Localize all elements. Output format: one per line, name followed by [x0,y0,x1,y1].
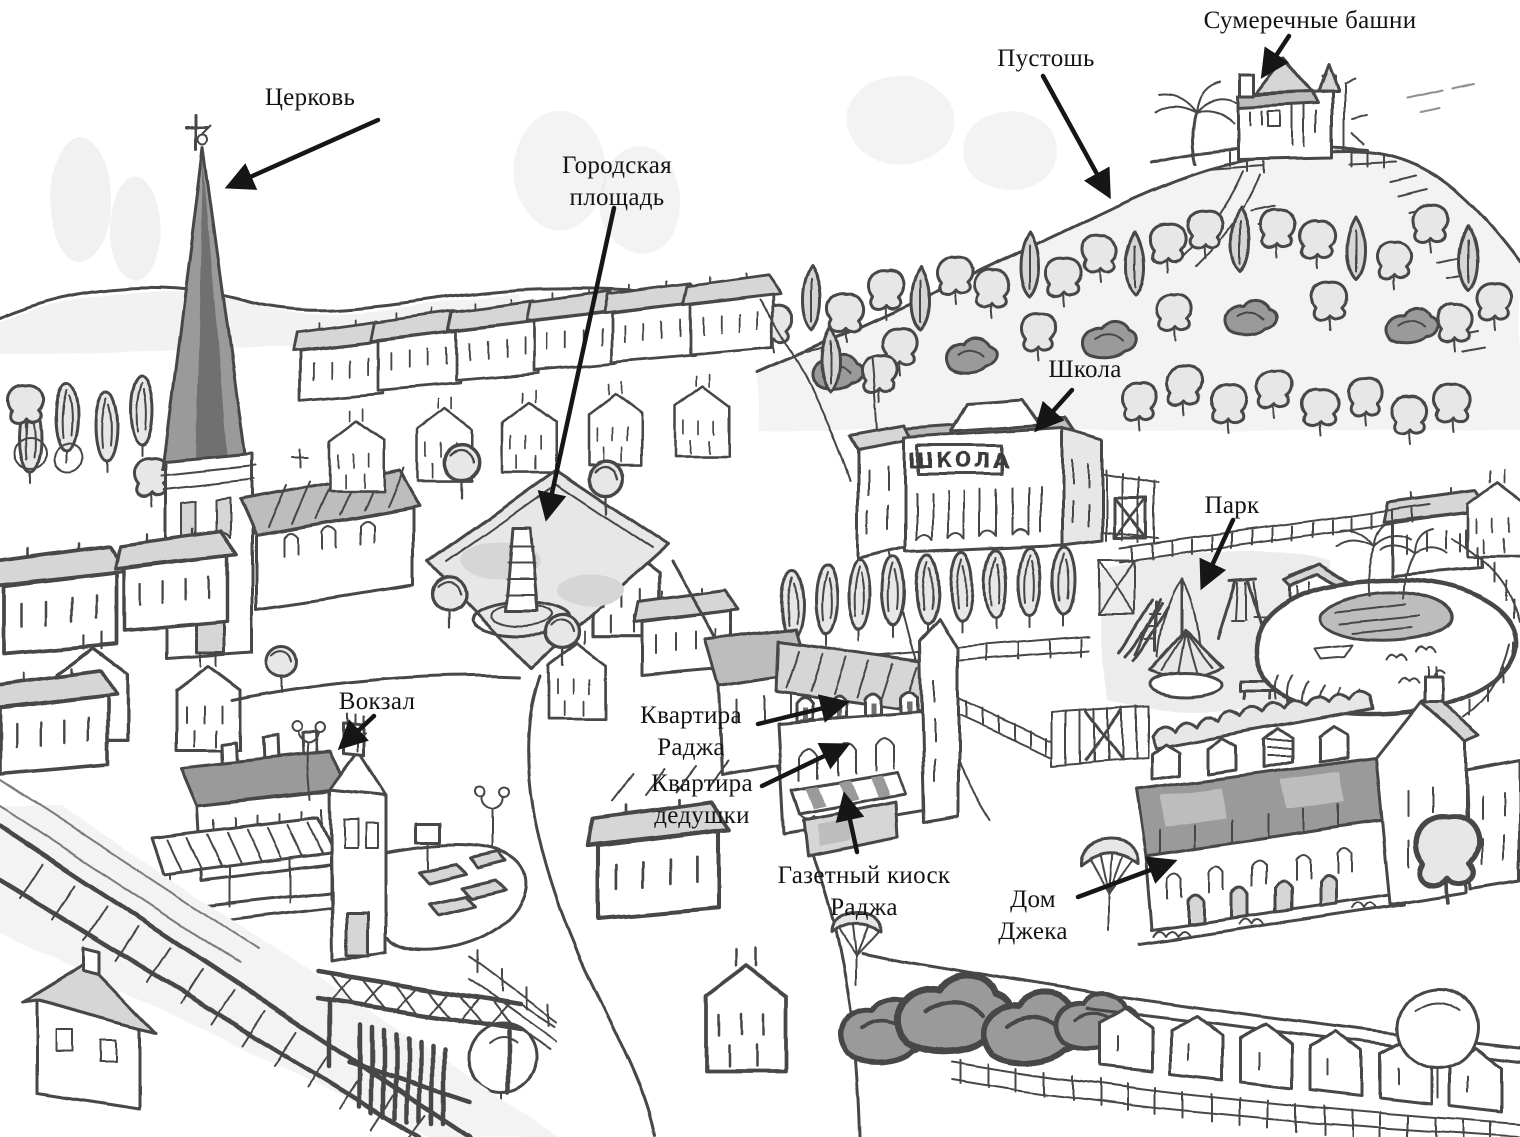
church-arrow [230,120,378,186]
label-church: Церковь [265,82,355,114]
label-heath: Пустошь [997,43,1095,75]
label-park: Парк [1205,490,1260,522]
label-raj-apartment: Квартира Раджа [626,700,756,764]
label-jack-house: Дом Джека [986,884,1081,948]
label-twilight-towers: Сумеречные башни [1204,5,1417,37]
left-trees [8,377,169,506]
label-grandpa-apartment: Квартира дедушки [637,768,767,832]
sketch-art: ШКОЛА [0,58,1520,1137]
label-school: Школа [1048,354,1121,386]
town-map-page: ШКОЛА [0,0,1520,1137]
label-raj-newsstand: Газетный киоск Раджа [769,860,959,924]
label-station: Вокзал [339,686,415,718]
school-sign-text: ШКОЛА [909,449,1012,473]
town-map-illustration: ШКОЛА [0,0,1520,1137]
bottom-houses-row [841,975,1520,1137]
label-town-square: Городская площадь [542,150,692,214]
